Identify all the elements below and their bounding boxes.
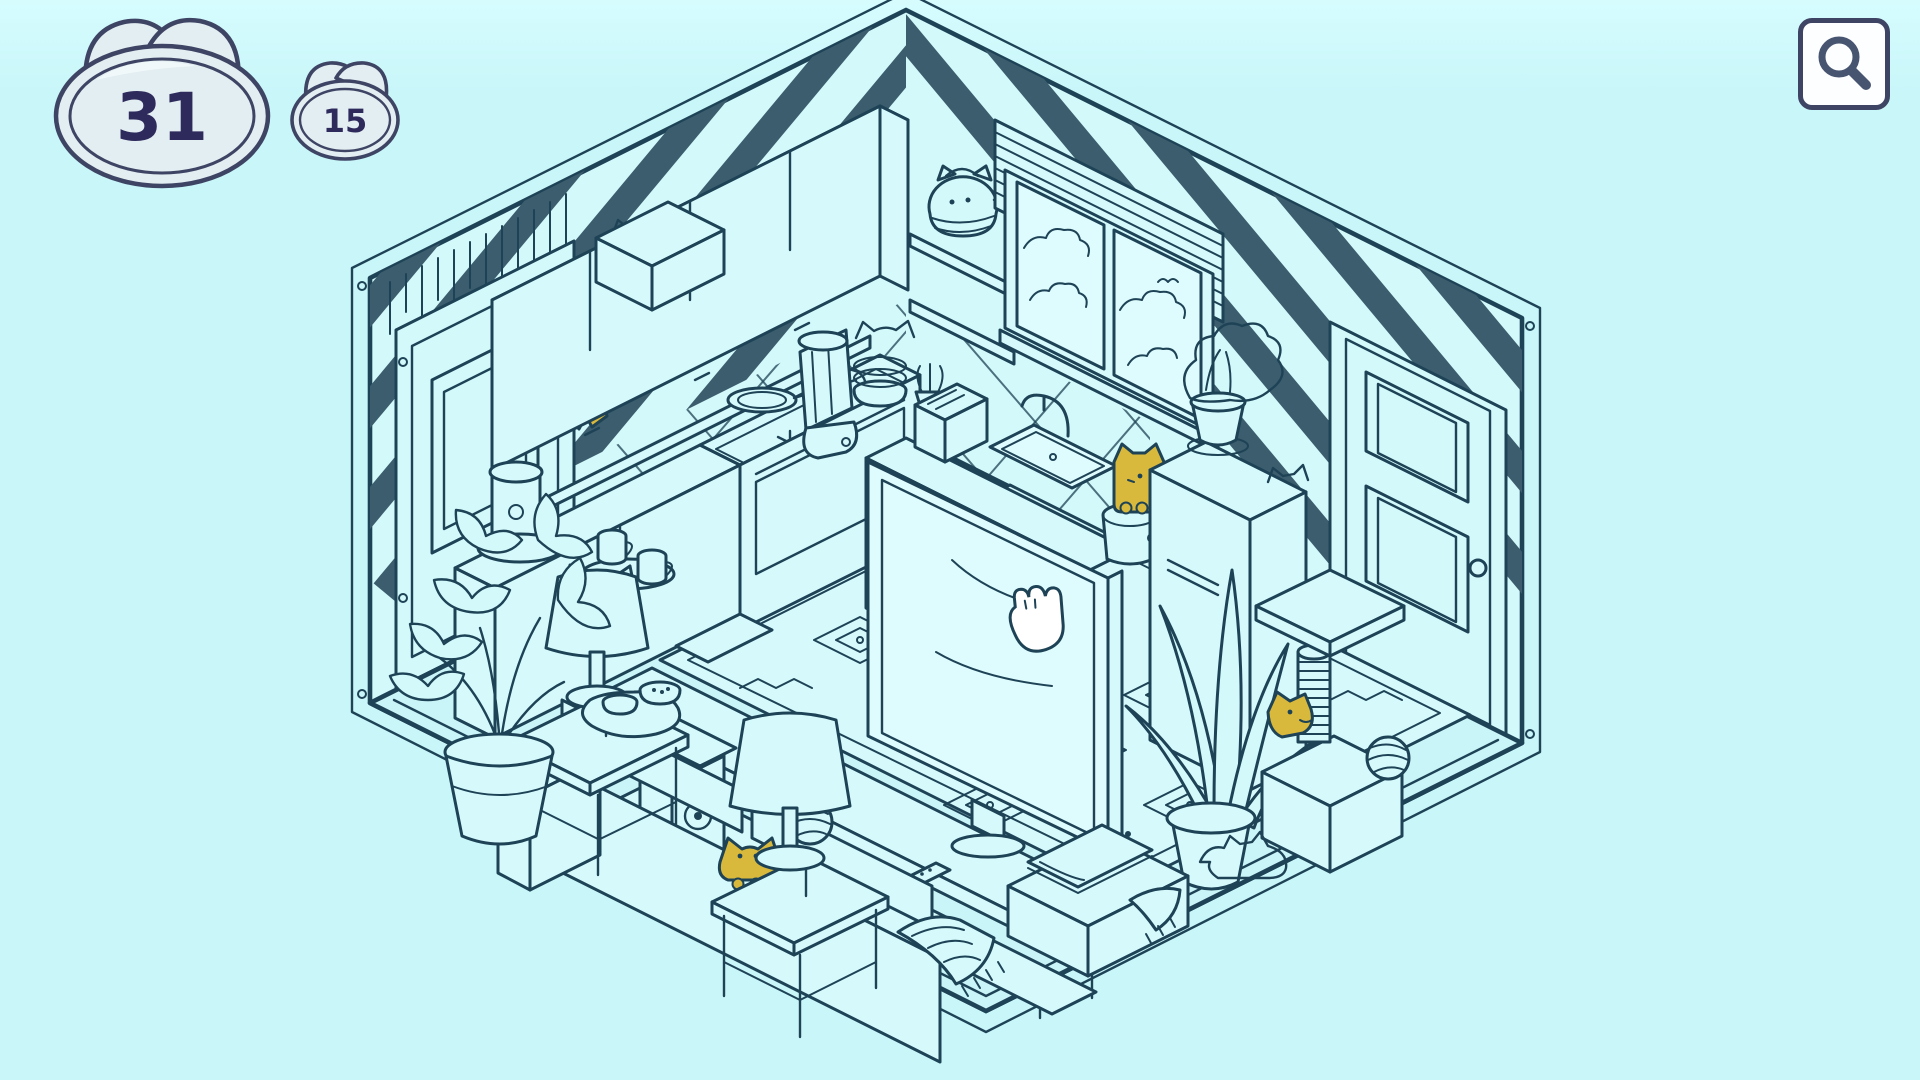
magnifier-icon xyxy=(1813,33,1875,95)
zoom-button[interactable] xyxy=(1798,18,1890,110)
secondary-counter-value: 15 xyxy=(323,102,368,140)
cat-counter-secondary: 15 xyxy=(278,56,414,174)
primary-counter-value: 31 xyxy=(116,79,208,156)
cat-counter-primary: 31 xyxy=(26,10,276,196)
yarn-ball-right xyxy=(1367,737,1409,779)
